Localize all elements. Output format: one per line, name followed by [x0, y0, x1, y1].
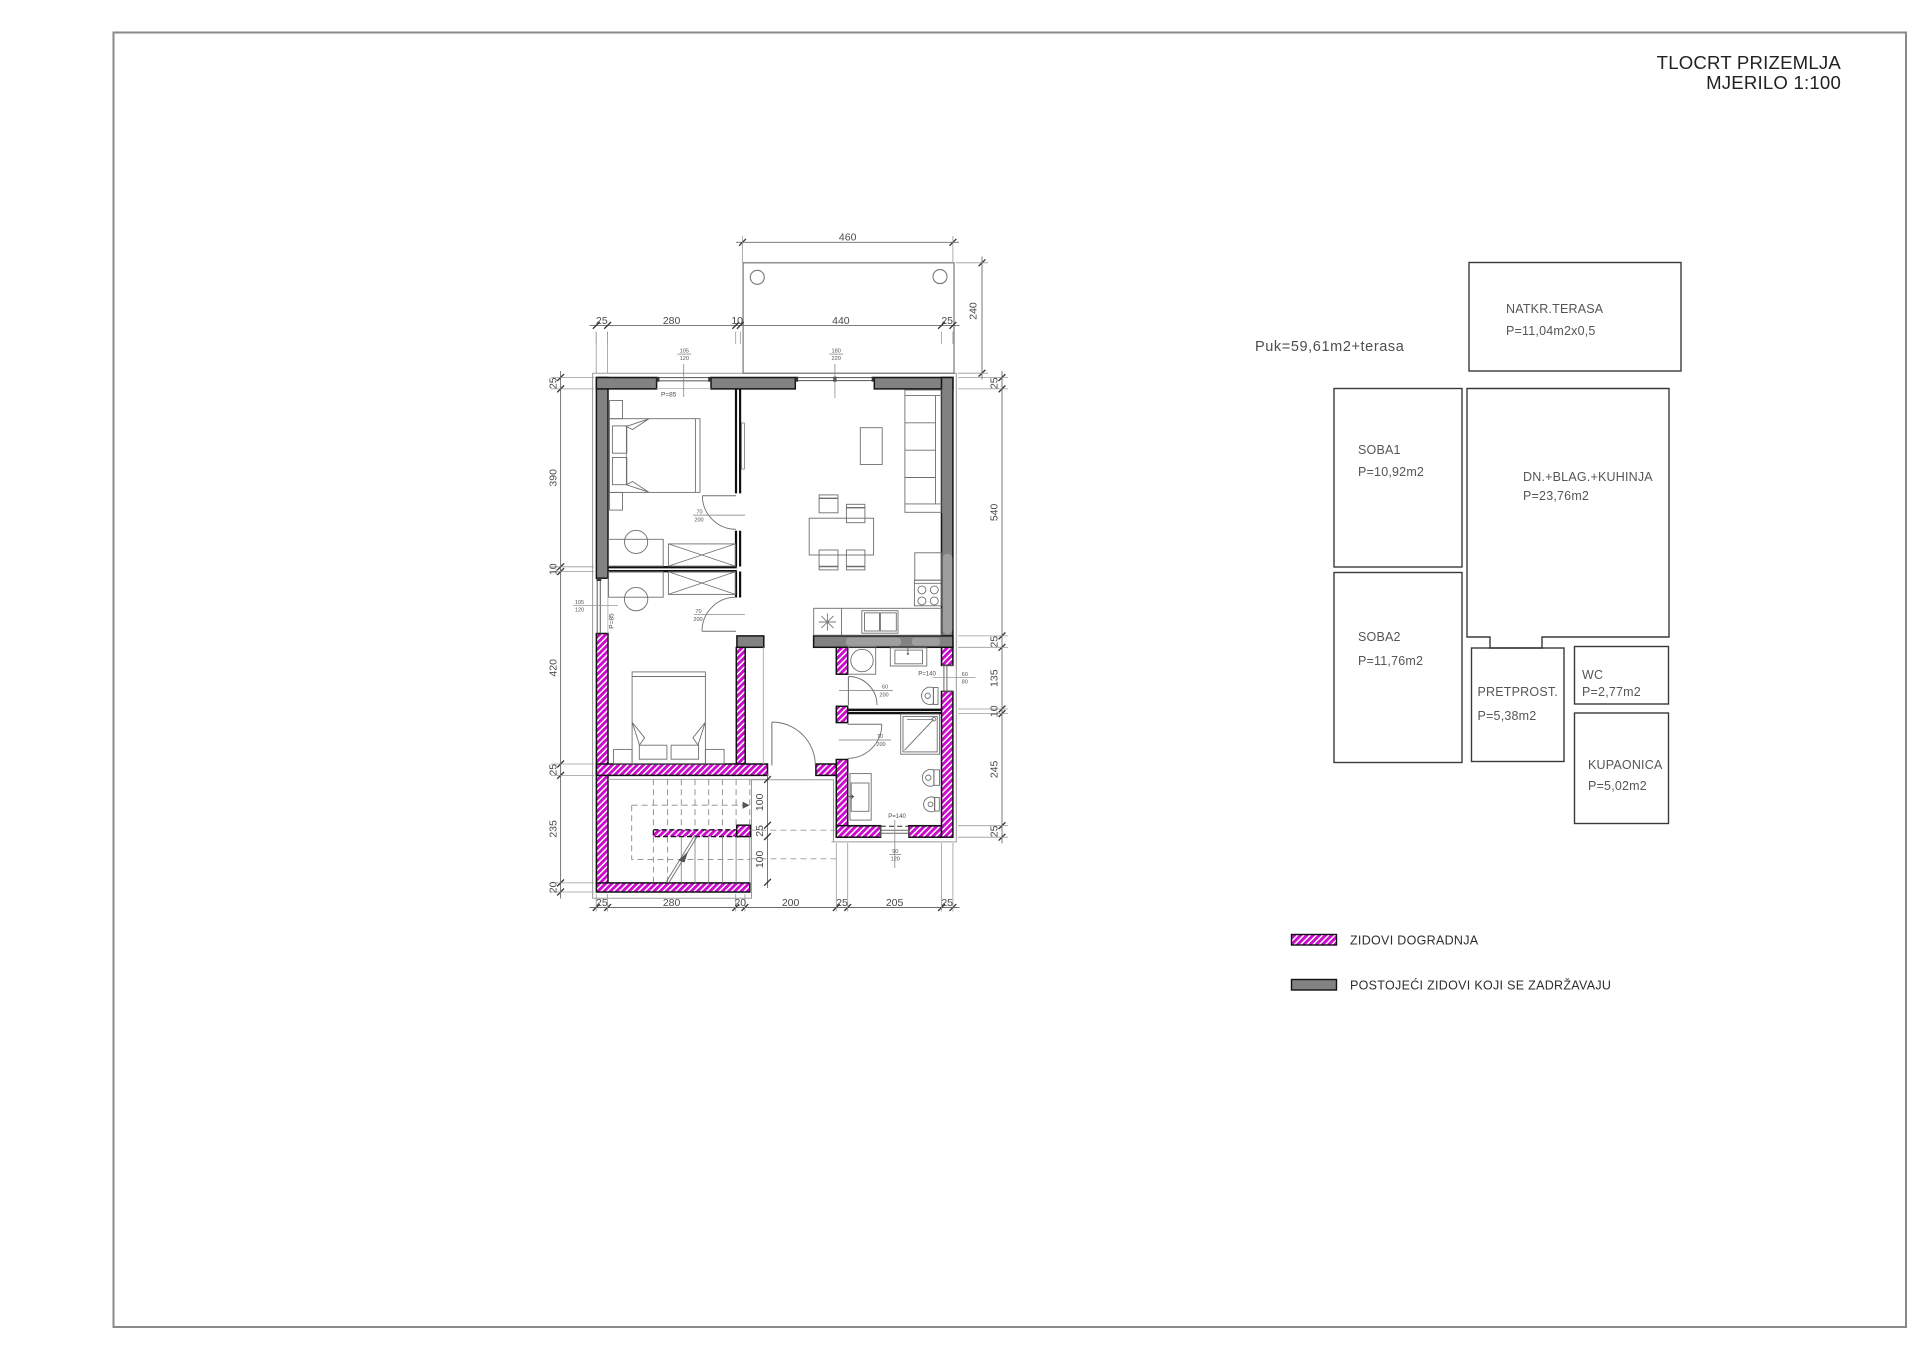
svg-text:P=140: P=140	[918, 672, 936, 678]
svg-text:PRETPROST.: PRETPROST.	[1478, 685, 1559, 699]
svg-text:60: 60	[962, 672, 968, 678]
svg-text:SOBA2: SOBA2	[1358, 630, 1401, 644]
svg-text:P=11,76m2: P=11,76m2	[1358, 654, 1423, 668]
svg-text:390: 390	[548, 469, 560, 487]
svg-text:205: 205	[886, 897, 904, 909]
svg-text:P=5,38m2: P=5,38m2	[1478, 709, 1537, 723]
svg-text:105: 105	[575, 600, 584, 606]
svg-text:235: 235	[548, 820, 560, 838]
svg-text:TLOCRT PRIZEMLJA: TLOCRT PRIZEMLJA	[1657, 52, 1842, 73]
svg-text:25: 25	[596, 897, 608, 909]
svg-text:420: 420	[548, 659, 560, 677]
svg-text:460: 460	[839, 232, 857, 244]
svg-text:540: 540	[989, 503, 1001, 521]
svg-text:90: 90	[892, 849, 898, 855]
svg-text:25: 25	[989, 636, 1001, 648]
svg-text:70: 70	[695, 609, 701, 615]
svg-text:20: 20	[734, 897, 746, 909]
svg-text:120: 120	[680, 356, 689, 362]
svg-text:25: 25	[596, 315, 608, 327]
svg-text:135: 135	[989, 669, 1001, 687]
svg-text:25: 25	[548, 764, 560, 776]
svg-text:200: 200	[693, 617, 702, 623]
svg-text:DN.+BLAG.+KUHINJA: DN.+BLAG.+KUHINJA	[1523, 470, 1653, 484]
svg-text:MJERILO 1:100: MJERILO 1:100	[1706, 72, 1841, 93]
svg-text:120: 120	[575, 608, 584, 614]
svg-text:SOBA1: SOBA1	[1358, 443, 1401, 457]
svg-text:60: 60	[882, 685, 888, 691]
svg-text:200: 200	[694, 517, 703, 523]
svg-text:25: 25	[941, 315, 953, 327]
svg-text:P=23,76m2: P=23,76m2	[1523, 489, 1589, 503]
svg-text:220: 220	[832, 356, 841, 362]
svg-text:P=85: P=85	[609, 613, 616, 629]
svg-text:70: 70	[877, 734, 883, 740]
svg-text:Puk=59,61m2+terasa: Puk=59,61m2+terasa	[1255, 339, 1405, 355]
svg-text:200: 200	[876, 742, 885, 748]
svg-text:25: 25	[989, 377, 1001, 389]
svg-text:P=140: P=140	[888, 814, 906, 820]
svg-text:25: 25	[836, 897, 848, 909]
svg-text:200: 200	[782, 897, 800, 909]
svg-text:WC: WC	[1582, 668, 1603, 682]
svg-text:105: 105	[680, 349, 689, 355]
svg-text:10: 10	[548, 563, 560, 575]
svg-text:20: 20	[548, 881, 560, 893]
svg-text:80: 80	[962, 680, 968, 686]
svg-text:POSTOJEĆI ZIDOVI KOJI SE ZADRŽ: POSTOJEĆI ZIDOVI KOJI SE ZADRŽAVAJU	[1350, 978, 1611, 993]
svg-text:70: 70	[696, 509, 702, 515]
svg-text:120: 120	[891, 857, 900, 863]
svg-text:280: 280	[663, 315, 681, 327]
svg-text:P=10,92m2: P=10,92m2	[1358, 465, 1424, 479]
svg-text:P=2,77m2: P=2,77m2	[1582, 685, 1641, 699]
svg-text:245: 245	[989, 760, 1001, 778]
svg-text:25: 25	[989, 825, 1001, 837]
svg-text:P=11,04m2x0,5: P=11,04m2x0,5	[1506, 324, 1596, 338]
svg-text:P=5,02m2: P=5,02m2	[1588, 779, 1647, 793]
svg-text:25: 25	[941, 897, 953, 909]
svg-text:25: 25	[754, 825, 766, 837]
svg-text:280: 280	[663, 897, 681, 909]
svg-text:440: 440	[832, 315, 850, 327]
svg-text:180: 180	[832, 349, 841, 355]
svg-text:P=85: P=85	[661, 392, 677, 399]
svg-text:200: 200	[879, 693, 888, 699]
svg-text:100: 100	[754, 850, 766, 868]
svg-text:25: 25	[548, 377, 560, 389]
svg-text:KUPAONICA: KUPAONICA	[1588, 758, 1663, 772]
svg-text:10: 10	[989, 705, 1001, 717]
svg-text:ZIDOVI DOGRADNJA: ZIDOVI DOGRADNJA	[1350, 934, 1479, 948]
svg-text:240: 240	[968, 302, 980, 320]
svg-text:NATKR.TERASA: NATKR.TERASA	[1506, 302, 1604, 316]
svg-text:100: 100	[754, 793, 766, 811]
svg-text:10: 10	[731, 315, 743, 327]
